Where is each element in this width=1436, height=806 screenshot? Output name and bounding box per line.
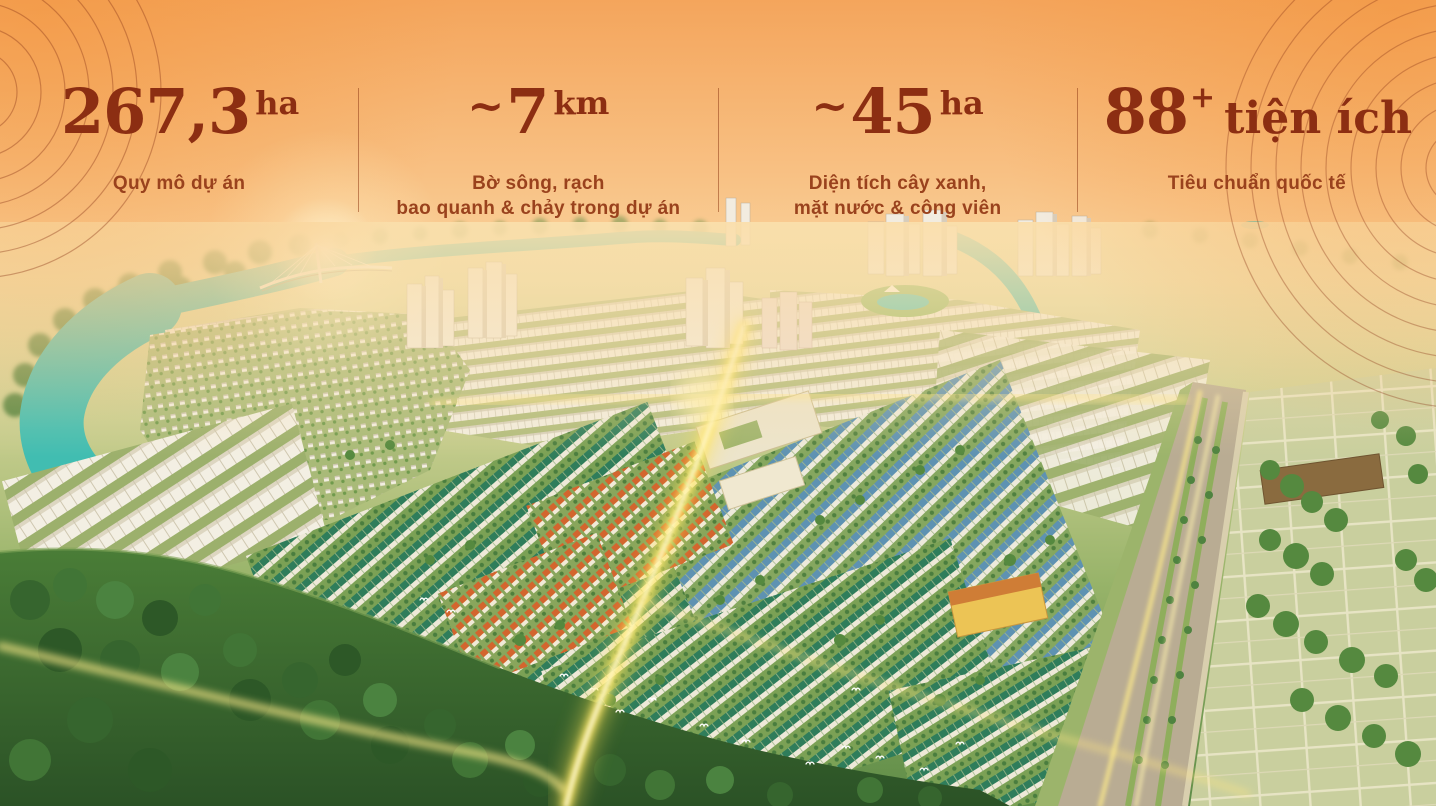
stat-green-area-label: Diện tích cây xanh,mặt nước & công viên [719, 171, 1077, 221]
stat-green-area-value: ~45ha [719, 76, 1077, 164]
stat-river-length-value: ~7km [359, 76, 717, 164]
stat-amenities: 88+tiện ích Tiêu chuẩn quốc tế [1078, 76, 1436, 196]
stat-project-area: 267,3ha Quy mô dự án [0, 76, 358, 196]
stat-unit: ha [255, 84, 299, 122]
stat-unit: km [553, 84, 609, 122]
stats-bar: 267,3ha Quy mô dự án ~7km Bờ sông, rạchb… [0, 76, 1436, 221]
stat-amenities-value: 88+tiện ích [1078, 76, 1436, 164]
stat-unit: ha [940, 84, 984, 122]
stat-river-length-label: Bờ sông, rạchbao quanh & chảy trong dự á… [359, 171, 717, 221]
hero-aerial-banner: 267,3ha Quy mô dự án ~7km Bờ sông, rạchb… [0, 0, 1436, 806]
stat-river-length: ~7km Bờ sông, rạchbao quanh & chảy trong… [359, 76, 717, 221]
stat-project-area-label: Quy mô dự án [0, 171, 358, 196]
stat-green-area: ~45ha Diện tích cây xanh,mặt nước & công… [719, 76, 1077, 221]
stat-unit: tiện ích [1224, 93, 1412, 144]
stat-project-area-value: 267,3ha [0, 76, 358, 164]
stat-amenities-label: Tiêu chuẩn quốc tế [1078, 171, 1436, 196]
